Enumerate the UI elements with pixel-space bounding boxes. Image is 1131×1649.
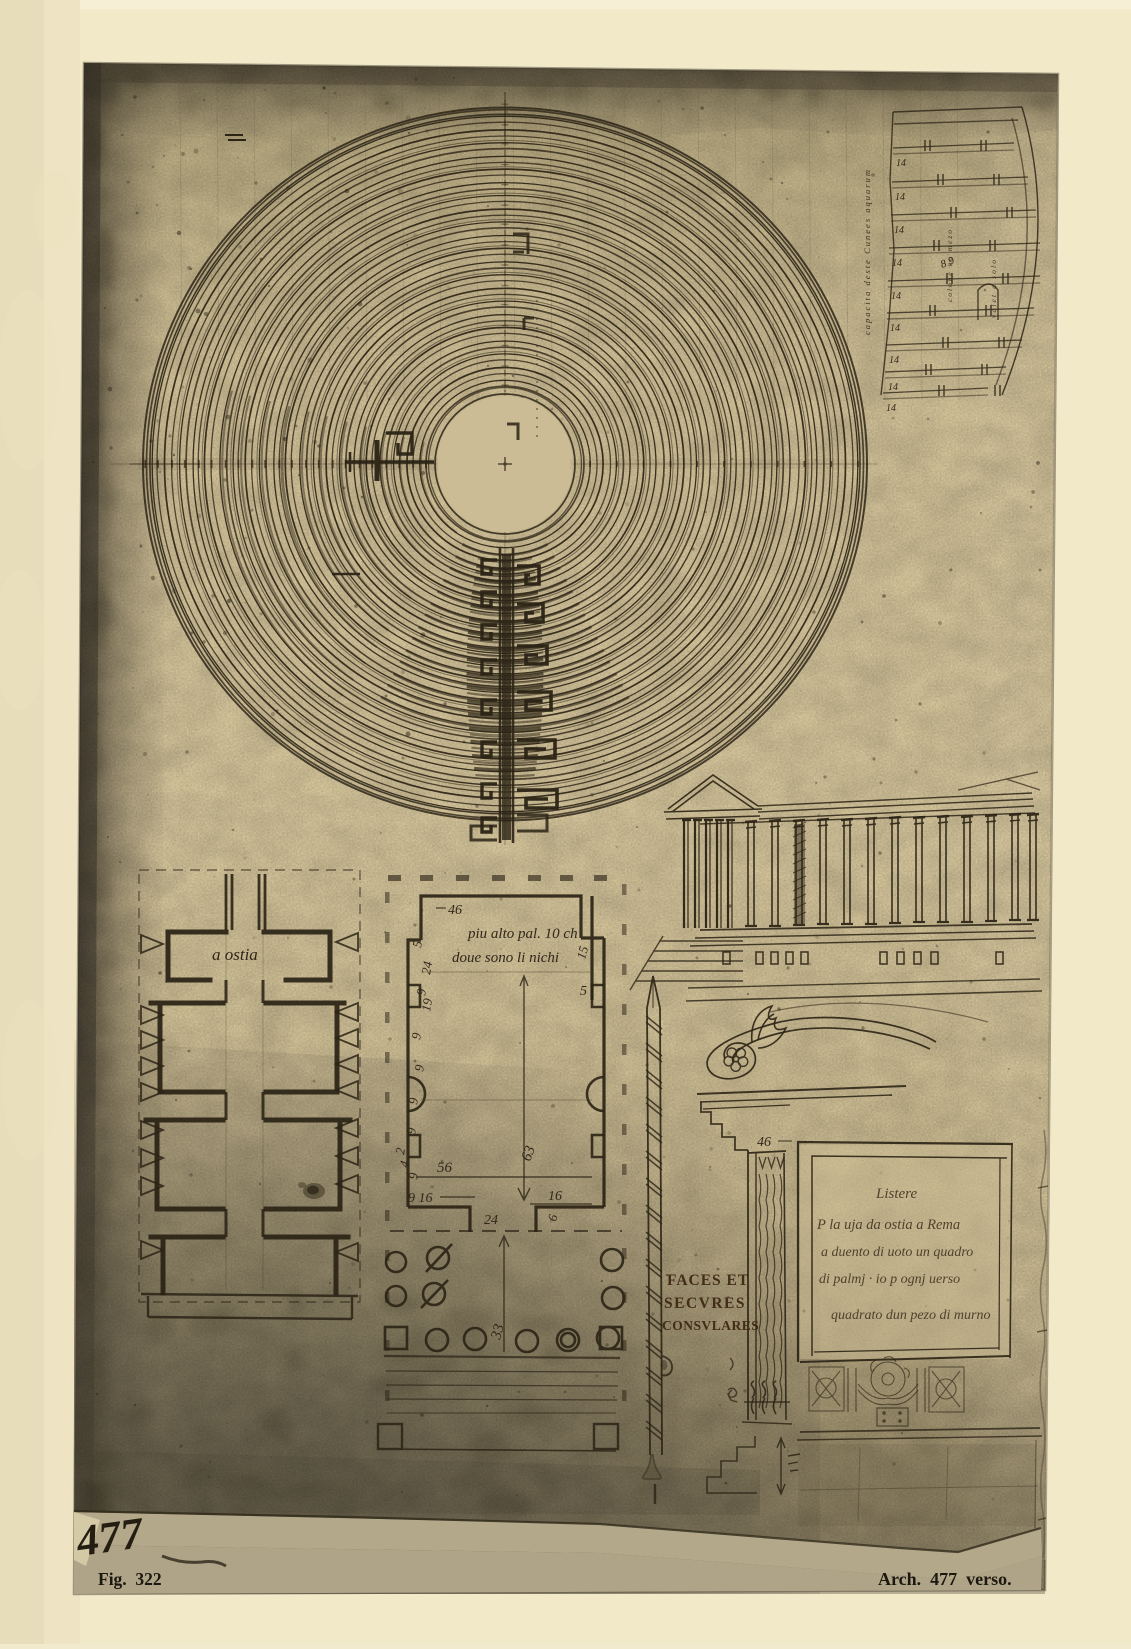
svg-text:a ostia: a ostia — [212, 945, 258, 964]
svg-text:9 16: 9 16 — [408, 1191, 433, 1206]
svg-text:14: 14 — [895, 192, 905, 203]
svg-text:14: 14 — [888, 382, 898, 393]
svg-text:56: 56 — [437, 1160, 453, 1176]
svg-text:CONSVLARES: CONSVLARES — [662, 1318, 759, 1333]
svg-text:SECVRES: SECVRES — [664, 1295, 746, 1312]
svg-text:14: 14 — [890, 323, 900, 334]
svg-text:16: 16 — [548, 1189, 562, 1204]
svg-text:a duento di uoto un quadro: a duento di uoto un quadro — [821, 1245, 973, 1260]
svg-text:46: 46 — [757, 1135, 771, 1150]
svg-text:24: 24 — [484, 1213, 498, 1228]
svg-text:Arch. 477 verso.: Arch. 477 verso. — [878, 1569, 1012, 1589]
svg-text:14: 14 — [891, 291, 901, 302]
svg-text:Listere: Listere — [875, 1186, 917, 1202]
svg-text:14: 14 — [896, 158, 906, 169]
svg-text:piu alto pal. 10 ch: piu alto pal. 10 ch — [467, 926, 578, 942]
svg-text:doue sono li nichi: doue sono li nichi — [452, 950, 559, 966]
svg-text:di palmj · io p ognj uerso: di palmj · io p ognj uerso — [819, 1272, 960, 1287]
svg-text:valet a solo: valet a solo — [989, 260, 998, 318]
svg-text:capacita deste Cunees aquarum: capacita deste Cunees aquarum — [862, 170, 872, 335]
svg-text:14: 14 — [894, 225, 904, 236]
svg-text:P la uja da ostia a Rema: P la uja da ostia a Rema — [816, 1217, 960, 1233]
svg-text:477: 477 — [73, 1508, 148, 1566]
svg-text:5: 5 — [580, 984, 587, 999]
svg-text:14: 14 — [889, 355, 899, 366]
svg-text:14: 14 — [892, 258, 902, 269]
svg-text:46: 46 — [448, 903, 462, 918]
svg-text:quadrato dun pezo di murno: quadrato dun pezo di murno — [831, 1308, 990, 1323]
svg-text:FACES ET: FACES ET — [667, 1272, 749, 1289]
svg-text:Fig. 322: Fig. 322 — [98, 1569, 162, 1589]
svg-text:14: 14 — [886, 403, 896, 414]
